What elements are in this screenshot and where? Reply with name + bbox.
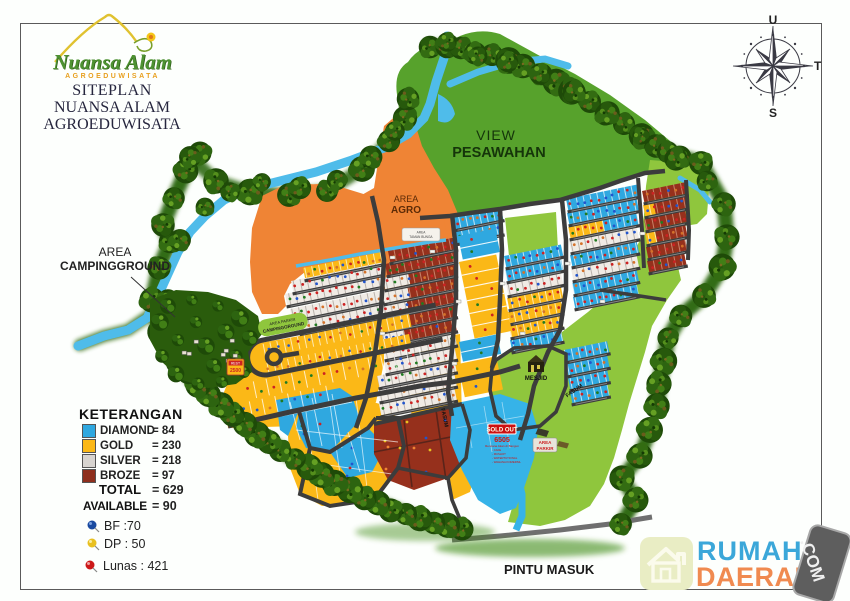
svg-text:2500: 2500 [230,368,241,374]
svg-text:S: S [769,106,777,120]
svg-text:TAMAN BUNGA: TAMAN BUNGA [409,235,433,239]
svg-text:AREA: AREA [417,231,427,235]
svg-text:PESAWAHAN: PESAWAHAN [452,145,545,161]
svg-text:PARKIR: PARKIR [537,446,555,451]
svg-text:MESJID: MESJID [525,376,548,382]
svg-text:AREA: AREA [539,440,553,445]
svg-text:VIEW: VIEW [476,127,516,143]
svg-text:REST: REST [231,362,240,366]
svg-text:6505: 6505 [494,437,510,444]
svg-text:U: U [769,13,778,27]
svg-text:AGRO: AGRO [391,205,421,216]
svg-text:- WAHANA KOMERSIL: - WAHANA KOMERSIL [492,460,521,464]
svg-text:T: T [814,59,822,73]
svg-text:AREA: AREA [394,194,419,204]
svg-text:SOLD OUT: SOLD OUT [487,428,518,434]
svg-text:Rencana Akan di Bangun: Rencana Akan di Bangun [485,444,519,448]
